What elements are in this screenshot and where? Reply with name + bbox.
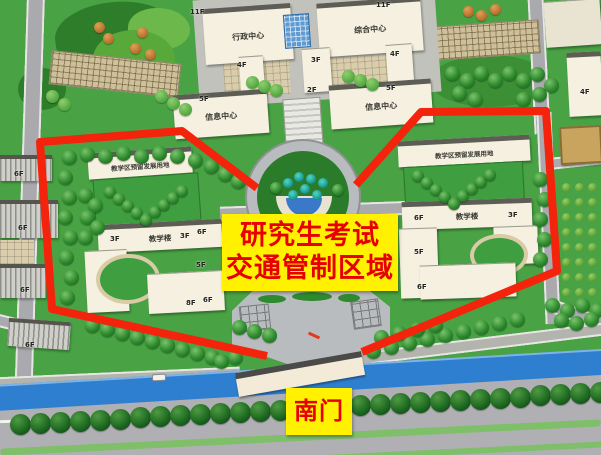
- boat: [152, 374, 166, 382]
- building-teaching-left: 教学楼: [97, 219, 222, 253]
- tree: [78, 230, 93, 245]
- tree: [588, 198, 597, 207]
- tree: [62, 150, 77, 165]
- residential-plaza: [0, 240, 34, 264]
- parking-grid: [350, 298, 382, 330]
- northeast-block: [543, 0, 601, 48]
- tree: [218, 167, 233, 182]
- tree: [562, 183, 571, 192]
- tree: [575, 288, 584, 297]
- tree: [205, 350, 220, 365]
- tree: [392, 326, 407, 341]
- tree: [575, 228, 584, 237]
- tree: [588, 258, 597, 267]
- plaza-shrub: [258, 295, 286, 303]
- tree: [78, 188, 93, 203]
- residential-building: [0, 155, 52, 181]
- parking-grid: [239, 304, 272, 333]
- tree: [204, 159, 219, 174]
- tree: [476, 10, 487, 21]
- tree: [60, 290, 75, 305]
- tree: [575, 273, 584, 282]
- east-wing: [419, 262, 516, 299]
- tree: [562, 228, 571, 237]
- east-road: [536, 112, 560, 324]
- tree: [562, 288, 571, 297]
- tree: [588, 288, 597, 297]
- control-zone-line1: 研究生考试: [240, 220, 380, 253]
- control-zone-notice: 研究生考试 交通管制区域: [222, 214, 398, 291]
- campus-map: 行政中心 综合中心 信息中心 信息中心 教学区预留发展用地 教学楼 教学区预留发…: [0, 0, 601, 455]
- west-courtyard: [92, 172, 201, 227]
- tree: [63, 230, 78, 245]
- east-white-building: [566, 51, 601, 117]
- tree: [492, 316, 507, 331]
- tree: [562, 243, 571, 252]
- tree: [130, 330, 145, 345]
- tree: [64, 270, 79, 285]
- building-info-center-right: 信息中心: [329, 78, 434, 129]
- control-zone-line2: 交通管制区域: [226, 253, 394, 286]
- tree: [575, 258, 584, 267]
- tree: [562, 213, 571, 222]
- east-tan-building: [559, 125, 601, 165]
- tree: [160, 338, 175, 353]
- building-label: 信息中心: [173, 94, 269, 139]
- tree: [575, 213, 584, 222]
- tree: [588, 228, 597, 237]
- tree: [410, 322, 425, 337]
- tree: [588, 243, 597, 252]
- west-wing: [147, 270, 225, 314]
- tree: [463, 6, 474, 17]
- tree: [85, 318, 100, 333]
- tree: [474, 320, 489, 335]
- building-info-center-left: 信息中心: [173, 89, 270, 139]
- residential-building: [0, 264, 46, 298]
- tree: [115, 326, 130, 341]
- tree: [59, 250, 74, 265]
- tree: [562, 258, 571, 267]
- south-gate-label: 南门: [286, 388, 352, 435]
- tree: [562, 198, 571, 207]
- tree: [510, 312, 525, 327]
- tree: [588, 273, 597, 282]
- tree: [231, 174, 246, 189]
- tree: [145, 334, 160, 349]
- residential-building: [7, 318, 71, 350]
- plaza-shrub: [292, 292, 332, 301]
- tree: [228, 350, 243, 365]
- tree: [456, 324, 471, 339]
- south-gate-text: 南门: [294, 397, 344, 426]
- plaza-shrub: [338, 294, 360, 302]
- tree: [588, 183, 597, 192]
- building-label: 信息中心: [329, 83, 433, 129]
- tree: [490, 4, 501, 15]
- tree: [100, 322, 115, 337]
- tree: [58, 210, 73, 225]
- tree: [575, 243, 584, 252]
- tree: [562, 273, 571, 282]
- tree: [175, 342, 190, 357]
- tree: [575, 198, 584, 207]
- floor-label: 5F: [196, 261, 206, 269]
- tree: [575, 183, 584, 192]
- residential-building: [0, 200, 58, 238]
- tree: [58, 170, 73, 185]
- tree: [80, 210, 95, 225]
- glass-atrium: [283, 13, 311, 49]
- tree: [190, 346, 205, 361]
- tree: [62, 190, 77, 205]
- tree: [428, 318, 443, 333]
- tree: [588, 213, 597, 222]
